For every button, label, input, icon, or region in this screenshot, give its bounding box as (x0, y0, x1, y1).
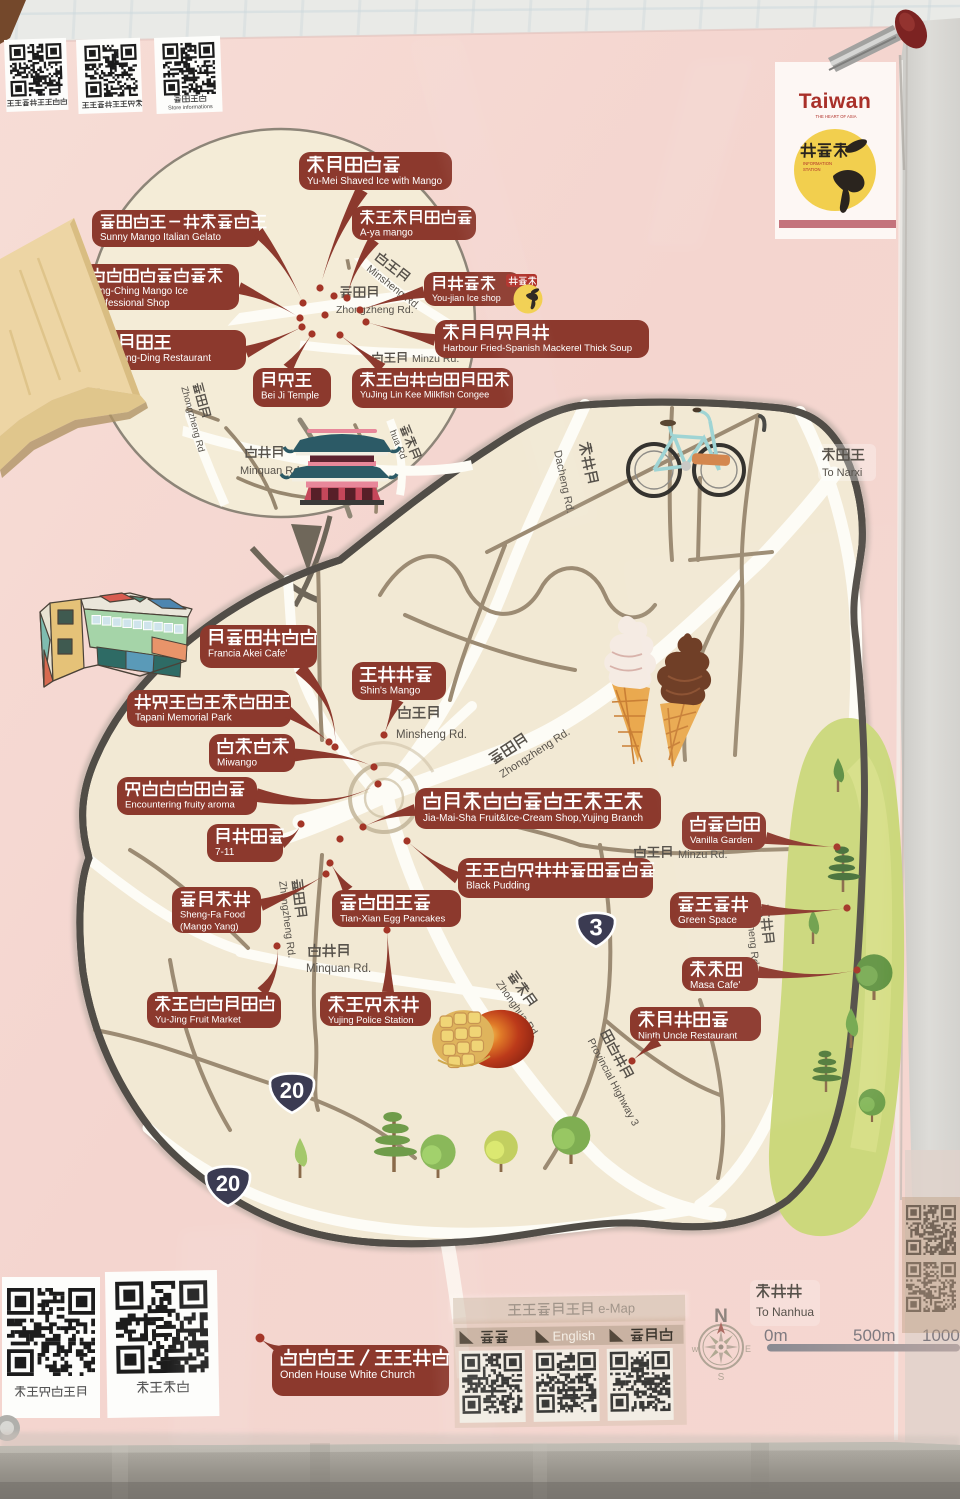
svg-text:YuJing Lin Kee Milkfish Congee: YuJing Lin Kee Milkfish Congee (360, 390, 489, 400)
svg-text:STATION: STATION (803, 167, 821, 172)
svg-text:20: 20 (280, 1078, 304, 1103)
svg-text:INFORMATION: INFORMATION (803, 161, 832, 166)
svg-text:Francia Akei Cafe': Francia Akei Cafe' (208, 649, 287, 660)
svg-text:Tapani Memorial Park: Tapani Memorial Park (135, 713, 233, 724)
svg-text:S: S (718, 1372, 725, 1383)
svg-text:Onden House White Church: Onden House White Church (280, 1369, 415, 1381)
svg-text:Minsheng Rd.: Minsheng Rd. (396, 729, 467, 741)
svg-text:Jia-Mai-Sha Fruit&Ice-Cream Sh: Jia-Mai-Sha Fruit&Ice-Cream Shop,Yujing … (423, 813, 643, 824)
svg-text:Qing-Ching Mango Ice: Qing-Ching Mango Ice (90, 286, 189, 297)
svg-text:Tian-Xian Egg Pancakes: Tian-Xian Egg Pancakes (340, 913, 445, 924)
svg-text:To Narxi: To Narxi (822, 467, 862, 479)
svg-text:Zhongzheng Rd.: Zhongzheng Rd. (336, 304, 414, 316)
svg-text:Black Pudding: Black Pudding (466, 881, 530, 892)
svg-text:Miwango: Miwango (217, 758, 257, 769)
svg-text:3: 3 (589, 915, 602, 942)
svg-text:Shin's Mango: Shin's Mango (360, 686, 421, 697)
svg-text:A-ya mango: A-ya mango (360, 228, 413, 239)
svg-text:E: E (745, 1344, 751, 1354)
svg-text:500m: 500m (853, 1326, 896, 1345)
svg-text:Taiwan: Taiwan (799, 90, 872, 113)
svg-text:w: w (691, 1344, 699, 1354)
svg-text:Minquan Rd.: Minquan Rd. (306, 963, 371, 975)
svg-text:Sunny Mango Italian Gelato: Sunny Mango Italian Gelato (100, 232, 221, 243)
svg-text:Yu-Mei Shaved Ice with Mango: Yu-Mei Shaved Ice with Mango (307, 176, 443, 187)
svg-text:English: English (552, 1328, 595, 1344)
svg-text:7-11: 7-11 (215, 847, 235, 858)
svg-text:To Nanhua: To Nanhua (756, 1305, 814, 1319)
svg-text:Bei Ji Temple: Bei Ji Temple (261, 391, 320, 402)
svg-text:THE HEART OF ASIA: THE HEART OF ASIA (815, 114, 856, 119)
svg-text:(Mango Yang): (Mango Yang) (180, 920, 239, 931)
svg-text:0m: 0m (764, 1326, 788, 1345)
svg-text:Yu-Jing Fruit Market: Yu-Jing Fruit Market (155, 1014, 241, 1025)
svg-text:Encountering fruity aroma: Encountering fruity aroma (125, 799, 236, 810)
svg-text:Yujing Police Station: Yujing Police Station (328, 1014, 413, 1025)
svg-text:20: 20 (216, 1171, 240, 1196)
svg-text:Sheng-Fa Food: Sheng-Fa Food (180, 909, 245, 920)
